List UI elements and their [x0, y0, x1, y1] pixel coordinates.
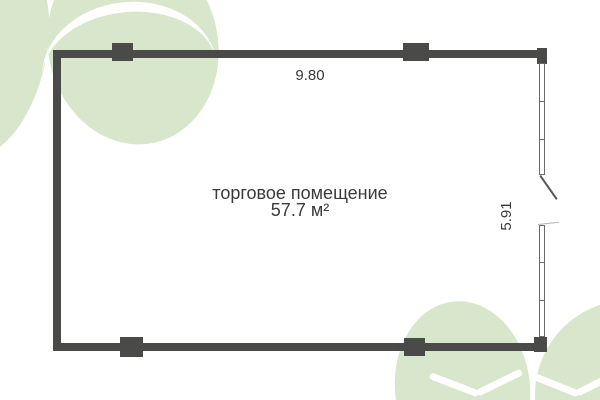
- window-lower: [539, 225, 545, 337]
- room-area-label: 57.7 м²: [140, 202, 460, 219]
- wall-column: [404, 338, 425, 356]
- window-mullion: [540, 300, 544, 301]
- wall-left: [53, 50, 61, 351]
- dimension-label-height: 5.91: [498, 186, 518, 246]
- wall-end-cap: [537, 48, 547, 64]
- window-mullion: [540, 262, 544, 263]
- window-mullion: [540, 139, 544, 140]
- door-jamb-line: [538, 222, 559, 225]
- door-swing-line: [539, 175, 557, 200]
- room-label-block: торговое помещение 57.7 м²: [140, 184, 460, 219]
- wall-column: [120, 337, 143, 357]
- window-mullion: [540, 101, 544, 102]
- floorplan-canvas: 9.80 5.91 торговое помещение 57.7 м²: [0, 0, 600, 400]
- wall-column: [112, 43, 133, 61]
- dimension-label-width: 9.80: [240, 67, 380, 84]
- wall-end-cap: [534, 337, 547, 352]
- window-upper: [539, 63, 545, 175]
- wall-column: [403, 43, 429, 61]
